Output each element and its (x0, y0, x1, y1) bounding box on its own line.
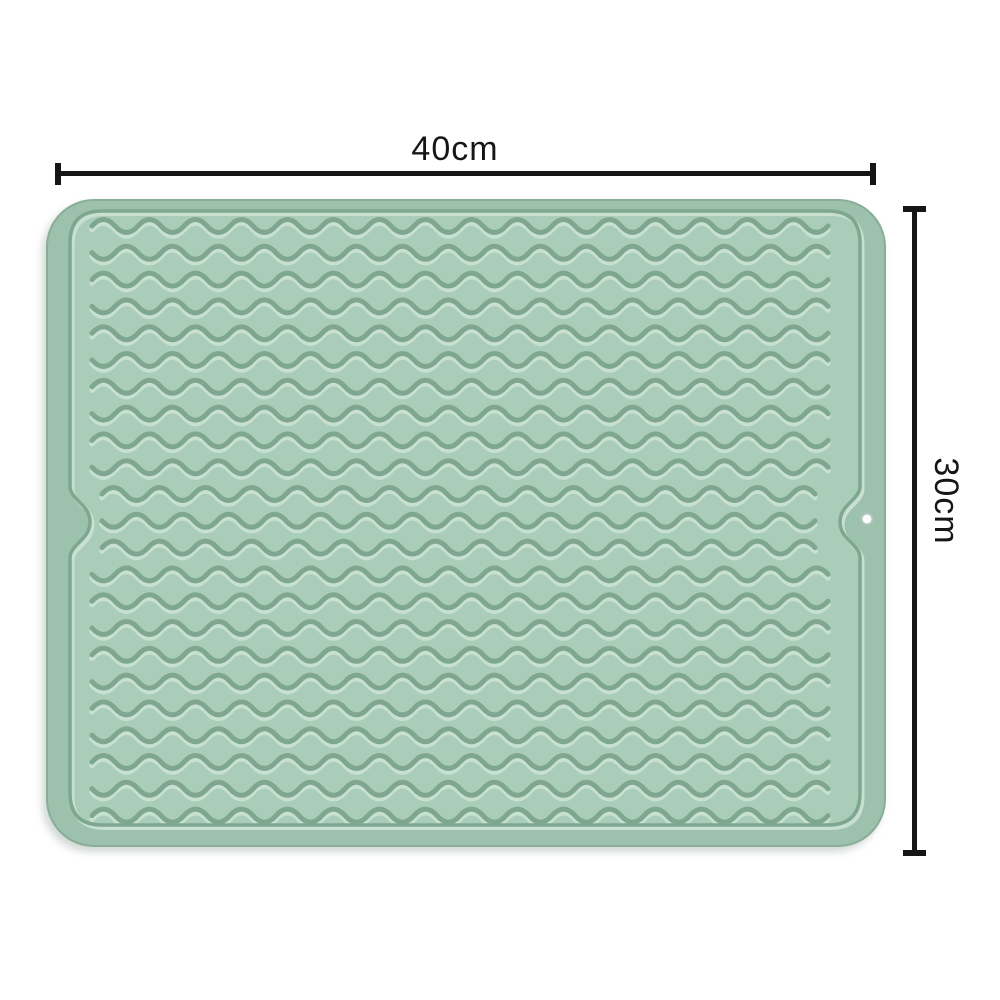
drying-mat-illustration (0, 0, 1000, 1000)
drying-mat (47, 200, 885, 846)
height-dimension-bar (912, 208, 917, 853)
hanging-hole (862, 514, 873, 525)
height-dimension-label: 30cm (929, 457, 963, 544)
product-dimension-diagram: 40cm 30cm (0, 0, 1000, 1000)
width-dimension-right-cap (870, 163, 876, 185)
width-dimension-bar (58, 171, 873, 176)
width-dimension-label: 40cm (411, 132, 498, 166)
height-dimension-bottom-cap (903, 850, 926, 856)
